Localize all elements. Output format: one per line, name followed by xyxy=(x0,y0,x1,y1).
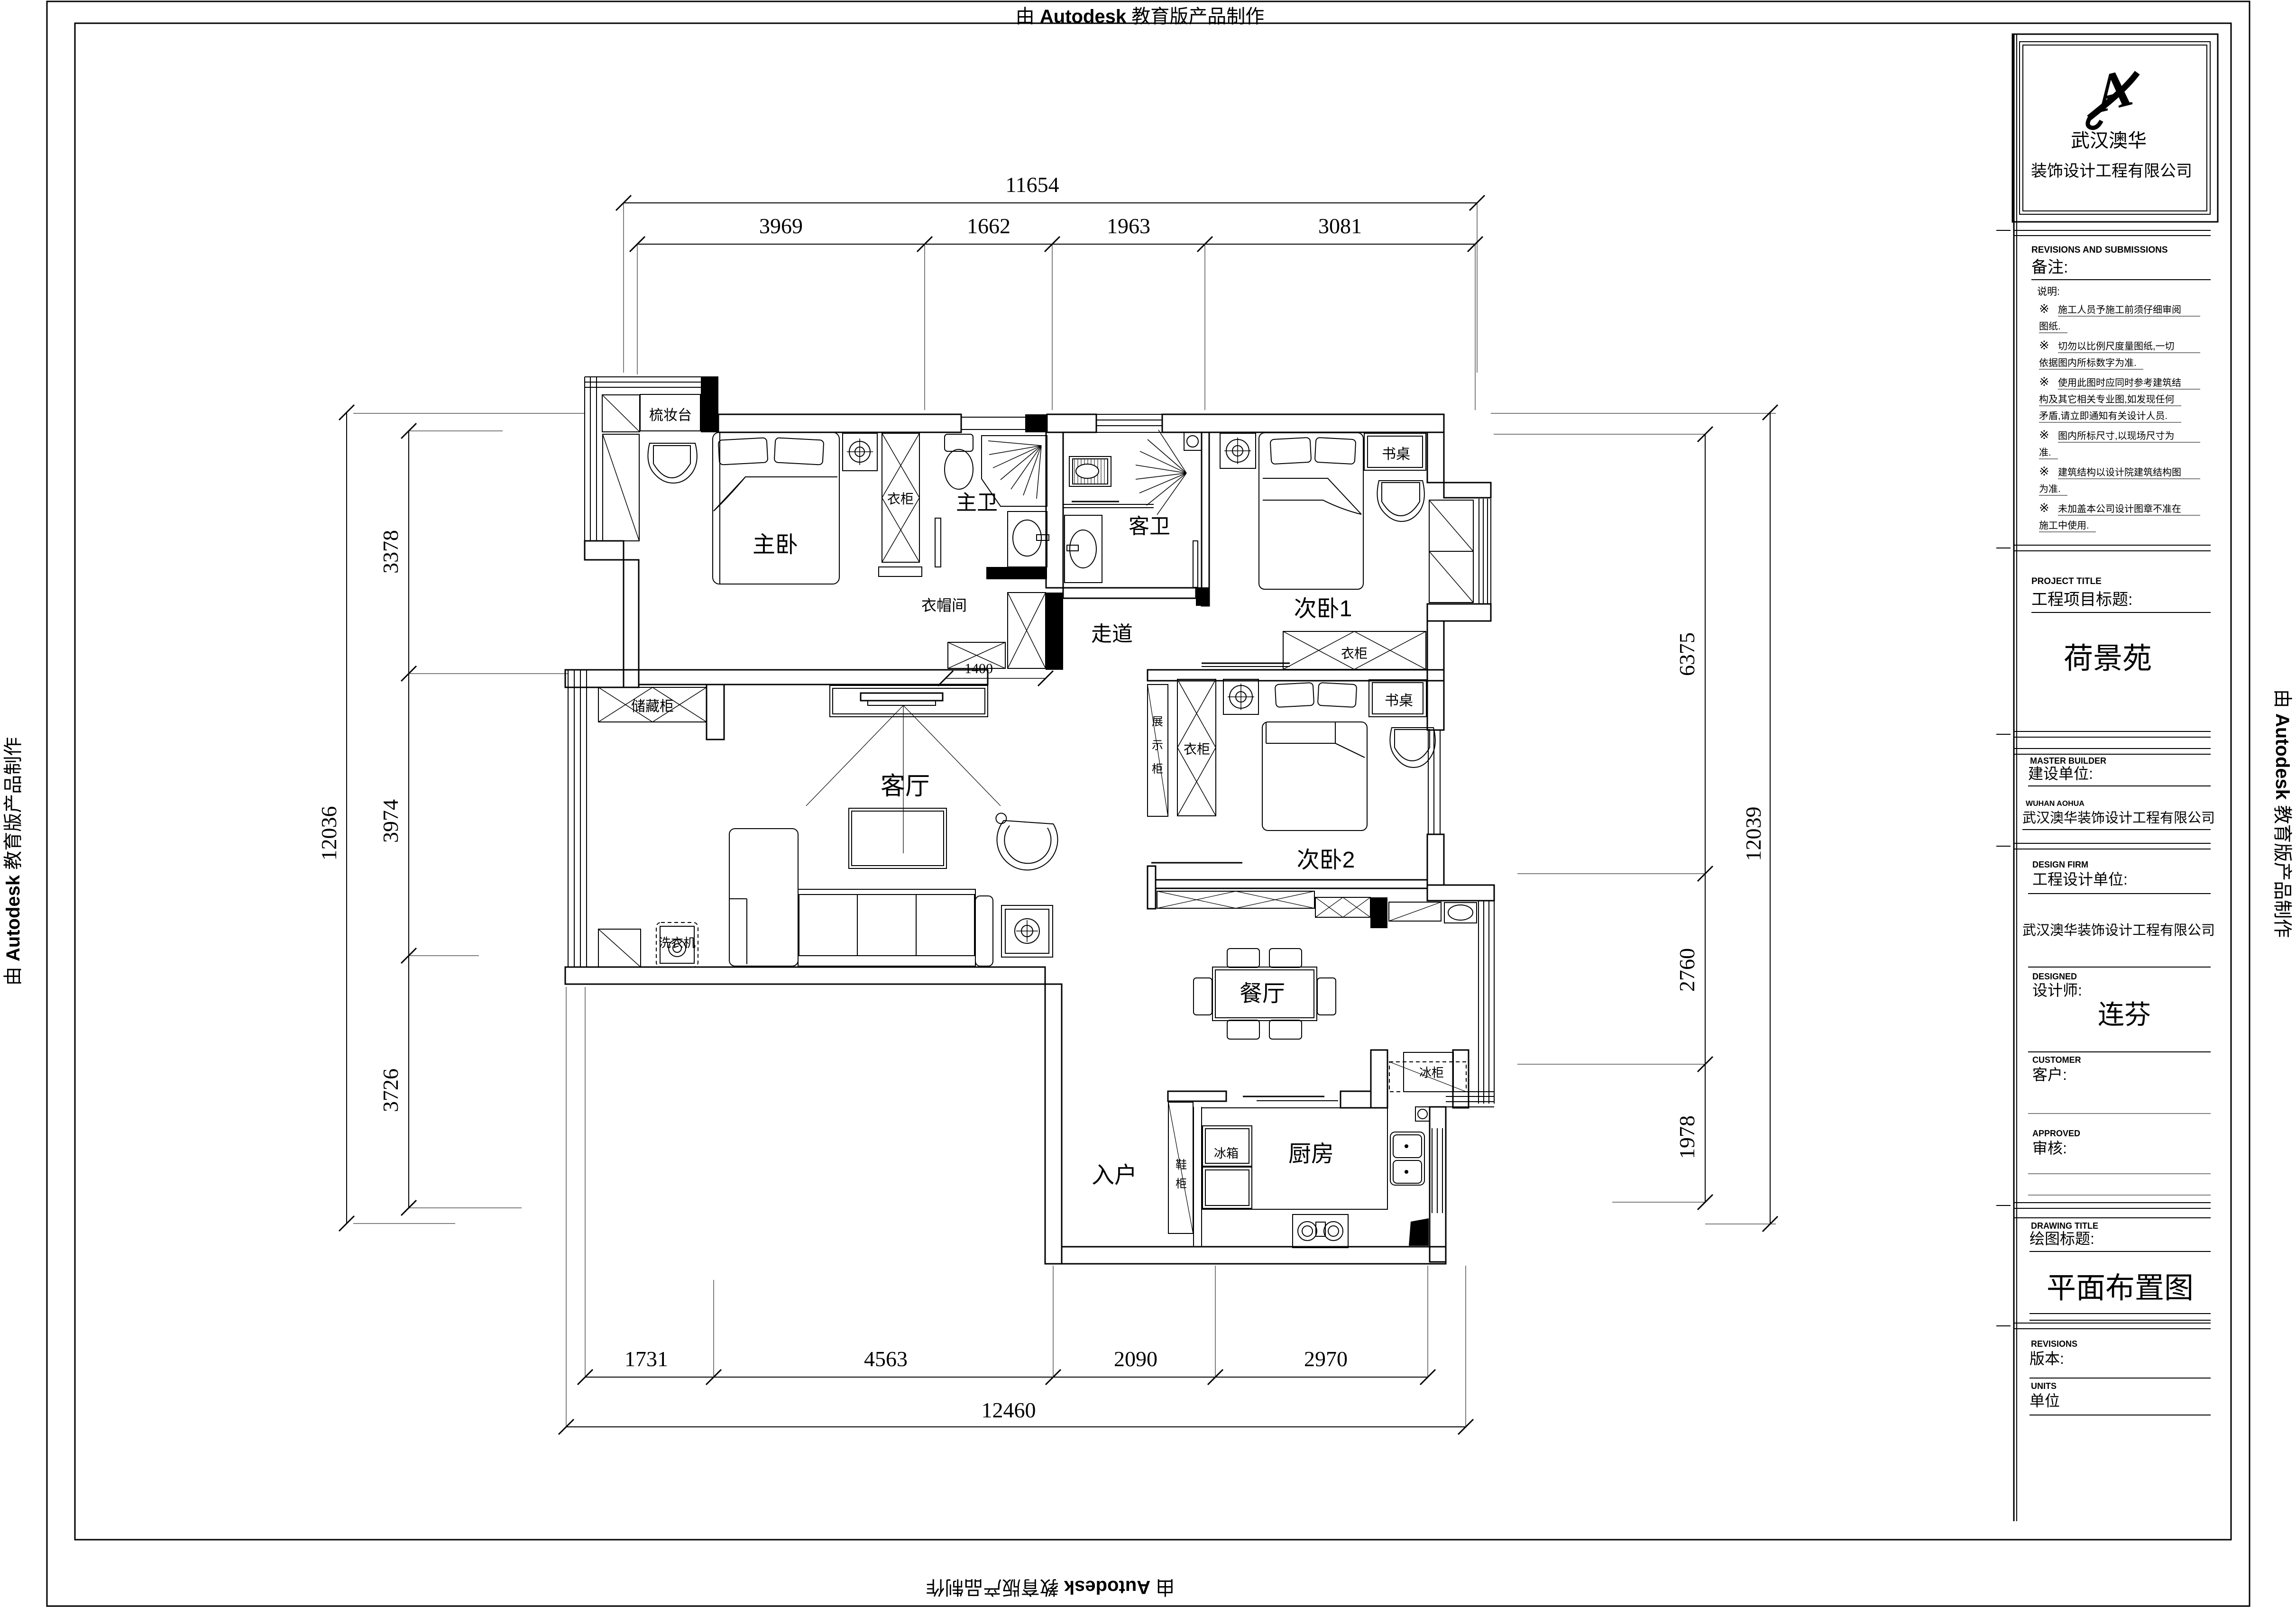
svg-text:准.: 准. xyxy=(2039,447,2051,458)
svg-text:3726: 3726 xyxy=(378,1068,403,1112)
svg-text:构及其它相关专业图,如发现任何: 构及其它相关专业图,如发现任何 xyxy=(2039,394,2175,405)
svg-text:客户:: 客户: xyxy=(2032,1066,2067,1083)
svg-text:武汉澳华: 武汉澳华 xyxy=(2071,130,2147,151)
svg-text:※: ※ xyxy=(2039,338,2049,352)
svg-text:1400: 1400 xyxy=(964,661,993,676)
svg-text:工程设计单位:: 工程设计单位: xyxy=(2032,871,2128,888)
svg-text:备注:: 备注: xyxy=(2031,258,2068,276)
svg-text:2090: 2090 xyxy=(1114,1347,1157,1371)
svg-text:UNITS: UNITS xyxy=(2031,1381,2057,1391)
svg-text:※: ※ xyxy=(2039,464,2049,478)
svg-text:DESIGN FIRM: DESIGN FIRM xyxy=(2032,860,2088,869)
svg-text:客厅: 客厅 xyxy=(881,773,930,800)
svg-text:6375: 6375 xyxy=(1675,632,1699,676)
svg-text:展: 展 xyxy=(1152,715,1163,728)
svg-text:由 Autodesk 教育版产品制作: 由 Autodesk 教育版产品制作 xyxy=(3,737,24,986)
svg-text:12039: 12039 xyxy=(1741,807,1765,861)
svg-text:2970: 2970 xyxy=(1304,1347,1348,1371)
svg-text:3378: 3378 xyxy=(378,530,403,574)
svg-text:切勿以比例尺度量图纸,一切: 切勿以比例尺度量图纸,一切 xyxy=(2058,341,2175,352)
svg-text:REVISIONS: REVISIONS xyxy=(2031,1339,2077,1349)
svg-text:梳妆台: 梳妆台 xyxy=(649,408,692,423)
svg-text:REVISIONS AND SUBMISSIONS: REVISIONS AND SUBMISSIONS xyxy=(2031,245,2168,255)
svg-text:洗衣机: 洗衣机 xyxy=(659,936,696,950)
svg-text:未加盖本公司设计图章不准在: 未加盖本公司设计图章不准在 xyxy=(2058,503,2181,514)
svg-text:由 Autodesk 教育版产品制作: 由 Autodesk 教育版产品制作 xyxy=(2272,689,2293,938)
svg-text:12460: 12460 xyxy=(982,1398,1036,1422)
svg-text:次卧1: 次卧1 xyxy=(1294,596,1352,621)
svg-text:装饰设计工程有限公司: 装饰设计工程有限公司 xyxy=(2031,162,2192,180)
svg-text:1731: 1731 xyxy=(625,1347,668,1371)
svg-text:餐厅: 餐厅 xyxy=(1240,981,1285,1006)
svg-text:版本:: 版本: xyxy=(2030,1350,2064,1367)
svg-text:※: ※ xyxy=(2039,501,2049,515)
svg-text:由 Autodesk 教育版产品制作: 由 Autodesk 教育版产品制作 xyxy=(926,1577,1175,1598)
svg-text:11654: 11654 xyxy=(1005,173,1059,197)
svg-text:武汉澳华装饰设计工程有限公司: 武汉澳华装饰设计工程有限公司 xyxy=(2022,922,2215,938)
svg-text:主卧: 主卧 xyxy=(753,532,798,557)
svg-text:储藏柜: 储藏柜 xyxy=(631,699,674,714)
svg-text:工程项目标题:: 工程项目标题: xyxy=(2031,591,2132,609)
svg-text:武汉澳华装饰设计工程有限公司: 武汉澳华装饰设计工程有限公司 xyxy=(2022,810,2215,826)
svg-text:入户: 入户 xyxy=(1092,1163,1137,1188)
svg-text:为准.: 为准. xyxy=(2039,484,2061,494)
svg-text:走道: 走道 xyxy=(1091,622,1133,646)
svg-text:CUSTOMER: CUSTOMER xyxy=(2032,1055,2081,1065)
svg-text:3081: 3081 xyxy=(1318,214,1362,238)
svg-text:主卫: 主卫 xyxy=(956,491,998,514)
svg-text:使用此图时应同时参考建筑结: 使用此图时应同时参考建筑结 xyxy=(2058,377,2181,388)
svg-text:图纸.: 图纸. xyxy=(2039,321,2061,332)
svg-text:施工人员予施工前须仔细审阅: 施工人员予施工前须仔细审阅 xyxy=(2058,304,2181,315)
svg-text:建设单位:: 建设单位: xyxy=(2028,765,2093,782)
svg-text:※: ※ xyxy=(2039,301,2049,316)
svg-text:图内所标尺寸,以现场尺寸为: 图内所标尺寸,以现场尺寸为 xyxy=(2058,430,2175,441)
svg-text:平面布置图: 平面布置图 xyxy=(2047,1272,2194,1305)
svg-text:单位: 单位 xyxy=(2030,1392,2060,1409)
svg-text:客卫: 客卫 xyxy=(1129,515,1170,538)
svg-text:12036: 12036 xyxy=(317,806,341,861)
svg-text:依据图内所标数字为准.: 依据图内所标数字为准. xyxy=(2039,357,2137,368)
svg-text:矛盾,请立即通知有关设计人员.: 矛盾,请立即通知有关设计人员. xyxy=(2039,411,2167,421)
svg-text:由 Autodesk 教育版产品制作: 由 Autodesk 教育版产品制作 xyxy=(1016,6,1265,27)
svg-text:衣柜: 衣柜 xyxy=(887,492,914,506)
svg-text:3969: 3969 xyxy=(759,214,803,238)
svg-text:3974: 3974 xyxy=(378,799,403,843)
svg-text:MASTER BUILDER: MASTER BUILDER xyxy=(2030,756,2106,766)
svg-text:厨房: 厨房 xyxy=(1288,1141,1334,1167)
svg-text:审核:: 审核: xyxy=(2032,1140,2067,1157)
svg-text:书桌: 书桌 xyxy=(1382,447,1410,462)
svg-text:※: ※ xyxy=(2039,428,2049,442)
svg-text:APPROVED: APPROVED xyxy=(2032,1129,2080,1138)
svg-text:衣柜: 衣柜 xyxy=(1341,646,1368,661)
svg-text:设计师:: 设计师: xyxy=(2032,982,2082,999)
svg-text:PROJECT TITLE: PROJECT TITLE xyxy=(2031,576,2102,586)
svg-text:书桌: 书桌 xyxy=(1385,693,1413,709)
svg-text:衣柜: 衣柜 xyxy=(1184,742,1210,757)
svg-text:次卧2: 次卧2 xyxy=(1297,848,1355,873)
svg-text:1963: 1963 xyxy=(1107,214,1150,238)
svg-text:施工中使用.: 施工中使用. xyxy=(2039,520,2089,531)
svg-text:冰箱: 冰箱 xyxy=(1214,1146,1239,1160)
svg-text:鞋: 鞋 xyxy=(1176,1159,1187,1171)
svg-text:1978: 1978 xyxy=(1675,1115,1699,1159)
svg-text:柜: 柜 xyxy=(1152,763,1163,776)
svg-text:冰柜: 冰柜 xyxy=(1419,1066,1444,1080)
svg-text:4563: 4563 xyxy=(864,1347,908,1371)
svg-text:衣帽间: 衣帽间 xyxy=(921,597,967,614)
svg-text:WUHAN AOHUA: WUHAN AOHUA xyxy=(2026,800,2085,808)
svg-text:荷景苑: 荷景苑 xyxy=(2064,642,2152,675)
svg-text:1662: 1662 xyxy=(967,214,1010,238)
svg-text:DESIGNED: DESIGNED xyxy=(2032,972,2077,981)
svg-text:示: 示 xyxy=(1152,739,1163,752)
svg-text:DRAWING TITLE: DRAWING TITLE xyxy=(2031,1221,2098,1231)
svg-text:柜: 柜 xyxy=(1176,1178,1187,1190)
svg-text:连芬: 连芬 xyxy=(2098,1000,2151,1030)
svg-text:建筑结构以设计院建筑结构图: 建筑结构以设计院建筑结构图 xyxy=(2058,467,2181,478)
svg-text:绘图标题:: 绘图标题: xyxy=(2030,1230,2094,1247)
svg-text:2760: 2760 xyxy=(1675,948,1699,992)
svg-text:※: ※ xyxy=(2039,374,2049,389)
svg-text:说明:: 说明: xyxy=(2037,286,2060,297)
